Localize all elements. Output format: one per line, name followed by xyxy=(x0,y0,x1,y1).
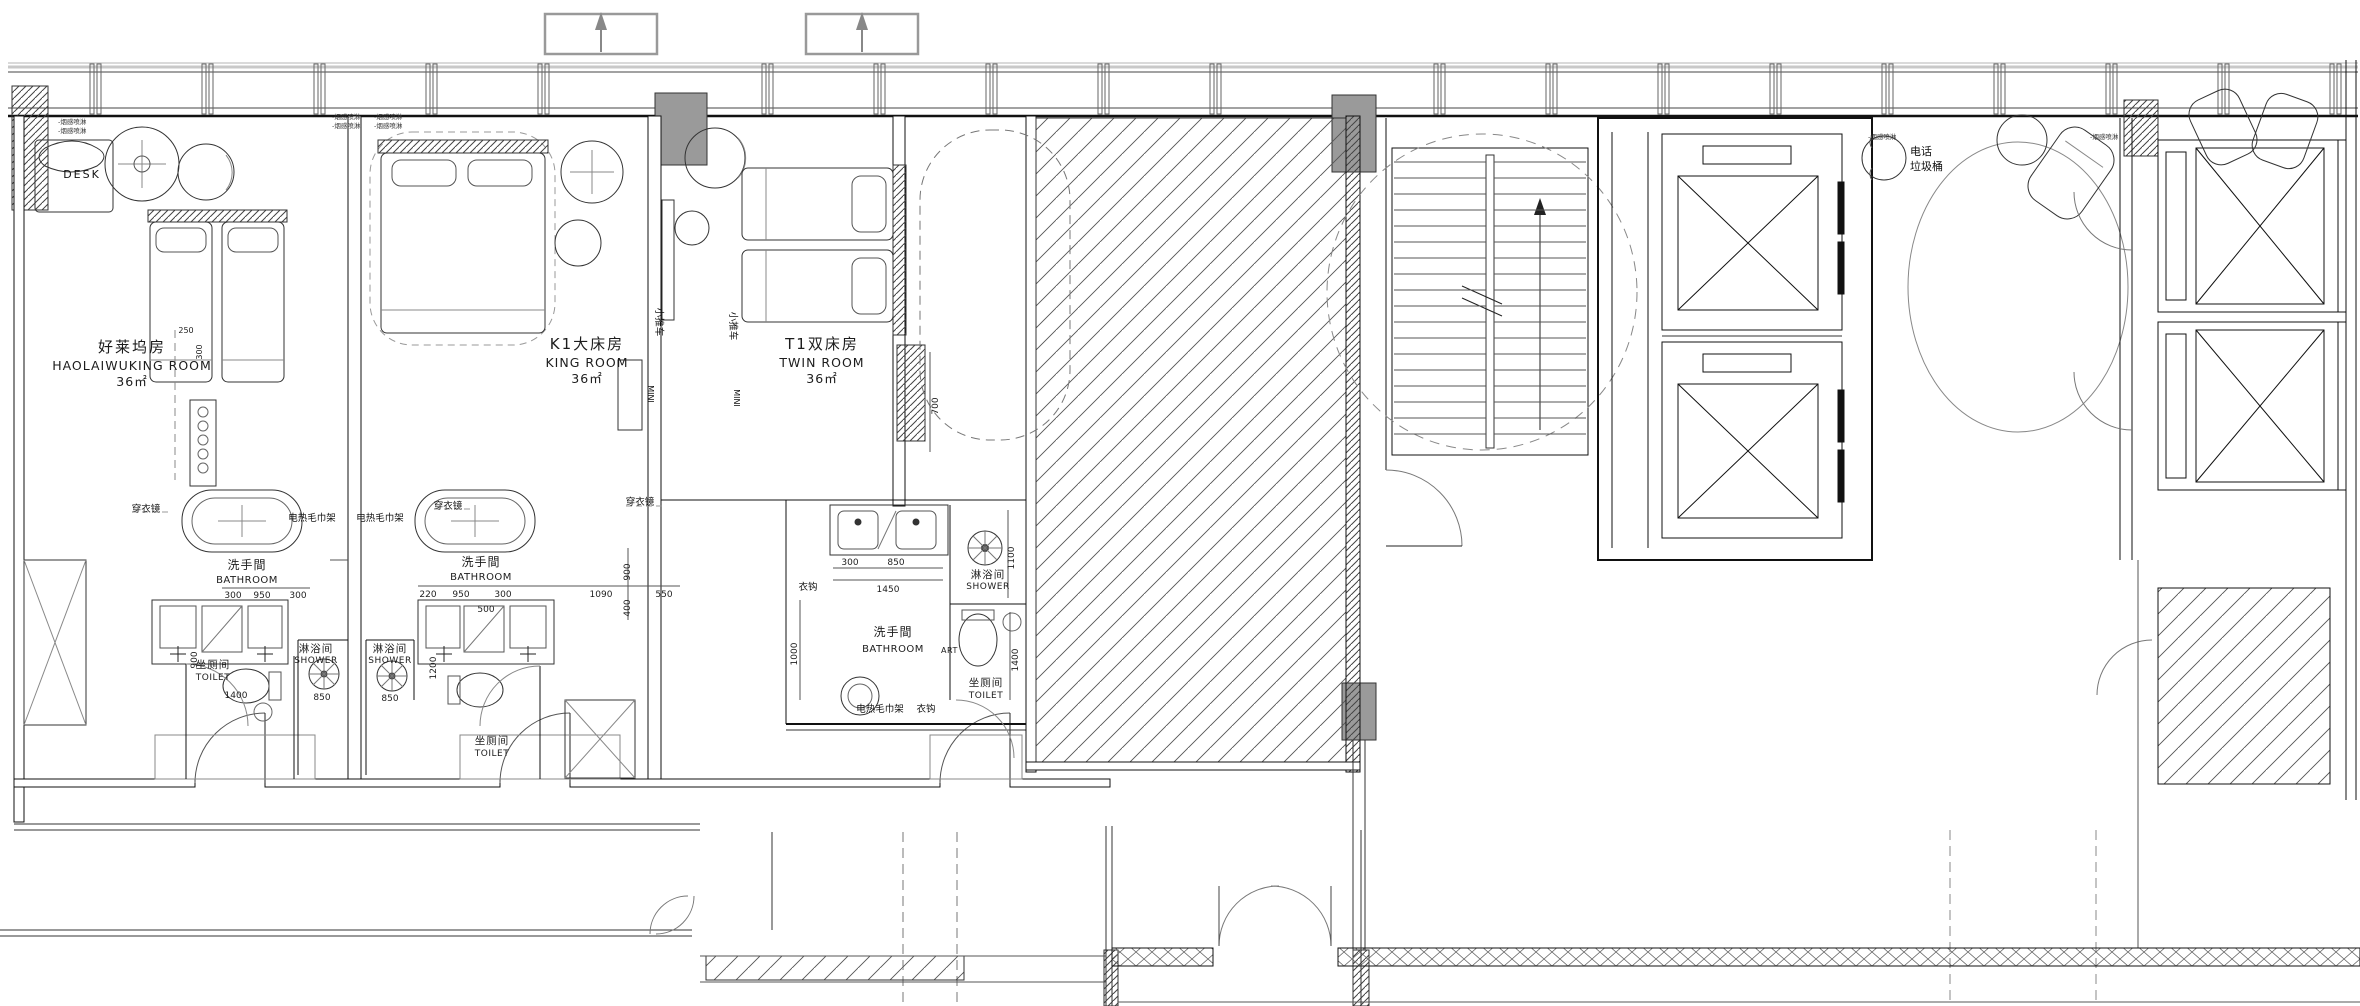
bed xyxy=(742,168,893,240)
crosshatch-wall xyxy=(1112,948,1213,966)
floor-plan-drawing: 好莱坞房 HAOLAIWUKING ROOM 36㎡ K1大床房 KING RO… xyxy=(0,0,2360,1006)
dashed-ellipse xyxy=(1327,134,1637,450)
toilet-label-en: TOILET xyxy=(968,691,1003,701)
double-door xyxy=(1219,886,1331,946)
minibar-label: MINI xyxy=(732,389,741,407)
dim-text: 1090 xyxy=(590,590,613,600)
bathroom-label-en: BATHROOM xyxy=(450,572,512,583)
trash-label: 垃圾桶 xyxy=(1910,159,1943,173)
double-door xyxy=(650,896,694,934)
elevator-shaft xyxy=(2158,322,2338,490)
sprinkler-note: -烟感喷淋 xyxy=(1868,132,1897,141)
shower-label-en: SHOWER xyxy=(966,582,1009,592)
dim-text: 850 xyxy=(887,558,904,568)
mirror-label: 穿衣镜 xyxy=(626,496,655,508)
room-label-cn: T1双床房 xyxy=(784,335,859,353)
dim-text: 850 xyxy=(381,694,398,704)
crosshatch-wall xyxy=(1338,948,2360,966)
elevator-shaft xyxy=(1662,134,1844,330)
dim-text: 1100 xyxy=(1007,546,1017,569)
room-label-cn: 好莱坞房 xyxy=(98,338,166,356)
bed-headboard xyxy=(893,165,906,335)
dim-text: 1400 xyxy=(1011,648,1021,671)
shower-label-en: SHOWER xyxy=(294,656,337,666)
room-label-en: KING ROOM xyxy=(545,355,628,370)
mirror-label: 穿衣镜 xyxy=(132,503,161,515)
stair xyxy=(1327,118,1637,950)
dim-text: 1200 xyxy=(429,656,439,679)
dim-text: 850 xyxy=(313,693,330,703)
stair-up-arrow xyxy=(1534,198,1546,215)
bathroom-label-en: BATHROOM xyxy=(862,644,924,655)
room-label-area: 36㎡ xyxy=(116,374,147,389)
elevator-shaft xyxy=(1662,342,1844,538)
towel-rack-label: 电热毛巾架 xyxy=(856,703,904,715)
mirror-lines xyxy=(130,506,662,512)
bathroom-label-cn: 洗手間 xyxy=(461,555,500,569)
towel-rack-label: 电热毛巾架 xyxy=(356,512,404,524)
dim-text: 1000 xyxy=(790,642,800,665)
bed-canopy xyxy=(370,132,555,345)
dim-text: 300 xyxy=(494,590,511,600)
lounge-chair xyxy=(2248,89,2323,173)
sprinkler-note: -烟感喷淋 xyxy=(332,121,361,130)
phone-label: 电话 xyxy=(1910,145,1932,158)
king-bed xyxy=(381,153,545,333)
cart-label: 小推车 xyxy=(653,308,665,337)
shower-label-cn: 淋浴间 xyxy=(299,642,334,655)
tv-console xyxy=(662,200,674,320)
sprinkler-note: -烟感喷淋 xyxy=(374,112,403,121)
phone-table xyxy=(1862,136,1906,180)
dim-text: 550 xyxy=(655,590,672,600)
section-arrows xyxy=(545,12,918,54)
room-label-en: HAOLAIWUKING ROOM xyxy=(52,358,212,373)
dim-text: 250 xyxy=(178,326,193,335)
sprinkler-note: -烟感喷淋 xyxy=(58,117,87,126)
bed-headboard xyxy=(378,140,548,153)
bed-headboard xyxy=(148,210,287,222)
hatched-area xyxy=(920,116,1360,772)
toilet-label-cn: 坐厕间 xyxy=(969,676,1004,689)
minibar-cabinet xyxy=(618,360,642,430)
pillow xyxy=(156,228,206,252)
sprinkler-note: -烟感喷淋 xyxy=(374,121,403,130)
shower-label-cn: 淋浴间 xyxy=(971,568,1006,581)
toilet xyxy=(959,614,997,666)
room-label-area: 36㎡ xyxy=(571,371,602,386)
dim-text: 950 xyxy=(253,591,270,601)
bathroom-label-cn: 洗手間 xyxy=(873,625,912,639)
bathroom-label-suffix: ART xyxy=(941,646,958,655)
minibar-label: MINI xyxy=(646,385,655,403)
elevator-core xyxy=(1598,118,1872,560)
round-chair xyxy=(178,144,234,200)
round-chair xyxy=(555,220,601,266)
pillow xyxy=(852,176,886,232)
round-chair xyxy=(1997,115,2047,165)
dim-text: 300 xyxy=(289,591,306,601)
dim-text: 300 xyxy=(224,591,241,601)
right-elevator-bank xyxy=(2074,60,2356,948)
dim-text: 300 xyxy=(195,344,204,359)
sprinkler-note: -烟感喷淋 xyxy=(2090,132,2119,141)
bathroom-1 xyxy=(152,490,348,779)
stair-treads xyxy=(1394,162,1586,434)
room-label-cn: K1大床房 xyxy=(550,335,624,353)
sprinkler-note: -烟感喷淋 xyxy=(332,112,361,121)
bottom-walls xyxy=(0,830,2360,1006)
hook-label: 衣钩 xyxy=(916,703,935,715)
rug-oval xyxy=(1908,142,2128,432)
dim-text: 1450 xyxy=(877,585,900,595)
toilet-label-cn: 坐厕间 xyxy=(196,658,231,671)
room-king xyxy=(370,132,674,430)
pillow xyxy=(852,258,886,314)
dim-text: 300 xyxy=(841,558,858,568)
mirror-label: 穿衣镜 xyxy=(434,500,463,512)
desk-label: DESK xyxy=(63,168,101,181)
hook-label: 衣钩 xyxy=(798,581,817,593)
pillow xyxy=(468,160,532,186)
dim-text: 220 xyxy=(419,590,436,600)
dim-text: 950 xyxy=(452,590,469,600)
dim-text: 500 xyxy=(477,605,494,615)
dim-text: 900 xyxy=(623,563,633,580)
double-vanity xyxy=(830,505,948,555)
room-twin xyxy=(675,128,925,441)
closet xyxy=(897,345,925,441)
elevator-shaft xyxy=(2158,140,2338,312)
pillow xyxy=(392,160,456,186)
shower-label-cn: 淋浴间 xyxy=(373,642,408,655)
bathroom-label-en: BATHROOM xyxy=(216,575,278,586)
service-shaft xyxy=(2158,588,2330,784)
floor-plan-canvas: 好莱坞房 HAOLAIWUKING ROOM 36㎡ K1大床房 KING RO… xyxy=(0,0,2360,1006)
dim-text: 700 xyxy=(931,397,941,414)
toilet xyxy=(457,673,503,707)
side-table xyxy=(675,211,709,245)
toilet-label-en: TOILET xyxy=(195,673,230,683)
dim-text: 900 xyxy=(190,651,200,668)
bathroom-label-cn: 洗手間 xyxy=(227,558,266,572)
towel-rack-label: 电热毛巾架 xyxy=(288,512,336,524)
bed xyxy=(222,222,284,382)
elevator-lobby-lounge xyxy=(1862,115,2128,1000)
toilet-label-cn: 坐厕间 xyxy=(475,734,510,747)
pillow xyxy=(228,228,278,252)
sprinkler-note: -烟感喷淋 xyxy=(58,126,87,135)
room-label-area: 36㎡ xyxy=(806,371,837,386)
room-label-en: TWIN ROOM xyxy=(778,355,864,370)
shower-label-en: SHOWER xyxy=(368,656,411,666)
cart-label: 小推车 xyxy=(727,312,739,341)
dim-text: 400 xyxy=(623,599,633,616)
bathroom-3 xyxy=(661,500,1030,758)
dim-text: 1400 xyxy=(225,691,248,701)
toilet-label-en: TOILET xyxy=(474,749,509,759)
bed xyxy=(742,250,893,322)
